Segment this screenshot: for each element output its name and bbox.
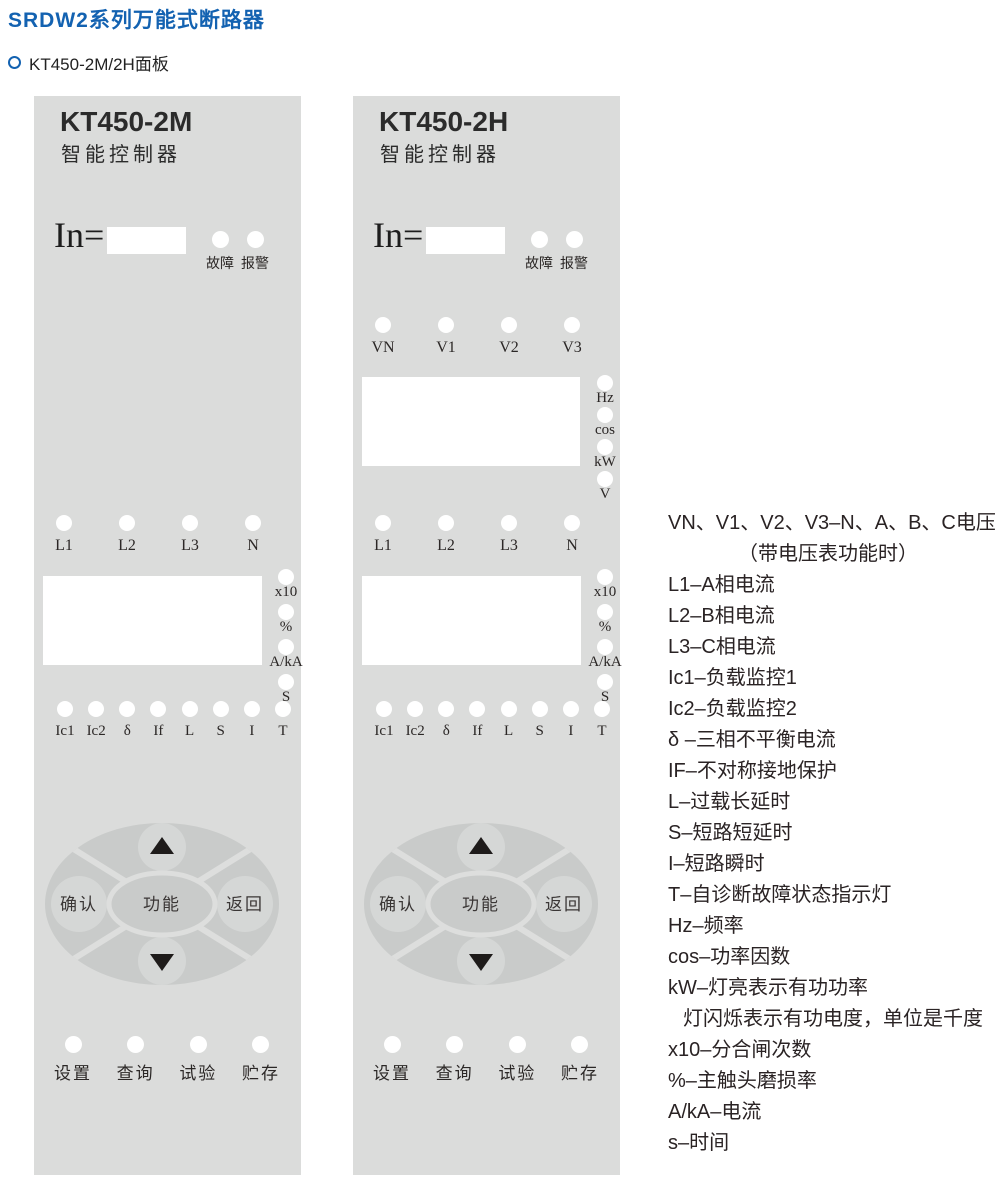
led-item-T: T [587, 701, 617, 740]
current-display [43, 576, 262, 665]
led-indicator [597, 375, 613, 391]
led-label: L [504, 723, 513, 740]
led-item-Ic2: Ic2 [81, 701, 111, 740]
keypad-return-button[interactable]: 返回 [536, 876, 592, 932]
led-label: L [185, 723, 194, 740]
led-label: δ [443, 723, 450, 740]
led-label: L1 [55, 537, 73, 555]
led-indicator [597, 407, 613, 423]
led-label: 贮存 [561, 1059, 599, 1084]
led-label: S [217, 723, 225, 740]
current-unit-led-column: x10%A/kAS [260, 569, 312, 709]
legend-line: T–自诊断故障状态指示灯 [668, 880, 998, 911]
led-item-%: % [278, 604, 294, 639]
led-item-故障: 故障 [522, 231, 556, 273]
legend-line: S–短路短延时 [668, 818, 998, 849]
led-indicator [190, 1036, 207, 1053]
led-item-贮存: 贮存 [239, 1036, 283, 1084]
protection-led-row: Ic1Ic2δIfLSIT [369, 701, 617, 740]
led-item-N: N [235, 515, 271, 555]
led-indicator [564, 515, 580, 531]
led-item-试验: 试验 [176, 1036, 220, 1084]
led-item-x10: x10 [594, 569, 617, 604]
led-label: V [600, 487, 611, 502]
legend-line: L–过载长延时 [668, 787, 998, 818]
led-item-If: If [143, 701, 173, 740]
voltage-led-row: VNV1V2V3 [365, 317, 590, 357]
led-item-δ: δ [112, 701, 142, 740]
led-label: Ic2 [87, 723, 106, 740]
led-item-A/kA: A/kA [588, 639, 621, 674]
led-item-L2: L2 [428, 515, 464, 555]
svg-text:返回: 返回 [545, 895, 583, 914]
legend-line: VN、V1、V2、V3–N、A、B、C电压 [668, 508, 998, 539]
led-indicator [597, 674, 613, 690]
legend-line: IF–不对称接地保护 [668, 756, 998, 787]
led-label: L2 [118, 537, 136, 555]
led-item-A/kA: A/kA [269, 639, 302, 674]
led-indicator [571, 1036, 588, 1053]
led-indicator [597, 604, 613, 620]
led-indicator [438, 701, 454, 717]
legend-line: %–主触头磨损率 [668, 1066, 998, 1097]
keypad-function-button[interactable]: 功能 [109, 873, 215, 935]
led-label: V3 [562, 339, 582, 357]
led-label: % [280, 620, 293, 635]
led-indicator [244, 701, 260, 717]
phase-led-row: L1L2L3N [365, 515, 590, 555]
keypad-function-button[interactable]: 功能 [428, 873, 534, 935]
led-label: Ic1 [374, 723, 393, 740]
led-item-V3: V3 [554, 317, 590, 357]
keypad: 确认 返回 功能 [43, 819, 281, 989]
led-label: δ [124, 723, 131, 740]
status-led-row: 故障报警 [203, 231, 272, 273]
led-label: N [566, 537, 578, 555]
rated-current-display [426, 227, 505, 254]
legend-line: I–短路瞬时 [668, 849, 998, 880]
led-label: cos [595, 423, 615, 438]
led-indicator [597, 639, 613, 655]
led-item-kW: kW [594, 439, 616, 471]
led-item-V1: V1 [428, 317, 464, 357]
led-indicator [127, 1036, 144, 1053]
led-label: x10 [594, 585, 617, 600]
legend-line: Hz–频率 [668, 911, 998, 942]
led-label: 设置 [373, 1059, 411, 1084]
led-indicator [597, 439, 613, 455]
led-item-VN: VN [365, 317, 401, 357]
legend-line: A/kA–电流 [668, 1097, 998, 1128]
led-indicator [594, 701, 610, 717]
led-label: 试验 [498, 1059, 536, 1084]
led-label: 故障 [206, 253, 234, 273]
led-label: 设置 [54, 1059, 92, 1084]
led-item-x10: x10 [275, 569, 298, 604]
led-label: L2 [437, 537, 455, 555]
panel-kt450-2h: KT450-2H 智能控制器 In= 故障报警 VNV1V2V3 HzcoskW… [353, 96, 620, 1175]
led-indicator [563, 701, 579, 717]
led-item-故障: 故障 [203, 231, 237, 273]
led-indicator [375, 515, 391, 531]
rated-current-label: In= [373, 214, 423, 256]
led-item-L1: L1 [46, 515, 82, 555]
led-indicator [182, 701, 198, 717]
led-item-V2: V2 [491, 317, 527, 357]
keypad-down-button[interactable] [138, 937, 186, 985]
legend-line: L1–A相电流 [668, 570, 998, 601]
led-item-I: I [556, 701, 586, 740]
panel-title: KT450-2H [379, 106, 508, 138]
led-item-查询: 查询 [433, 1036, 477, 1084]
voltage-display [362, 377, 580, 466]
led-label: 报警 [560, 253, 588, 273]
led-indicator [245, 515, 261, 531]
led-item-L3: L3 [172, 515, 208, 555]
led-item-cos: cos [595, 407, 615, 439]
led-item-L1: L1 [365, 515, 401, 555]
legend-line: x10–分合闸次数 [668, 1035, 998, 1066]
led-item-T: T [268, 701, 298, 740]
led-label: VN [371, 339, 394, 357]
led-indicator [252, 1036, 269, 1053]
led-indicator [501, 317, 517, 333]
led-item-V: V [597, 471, 613, 503]
keypad-up-button[interactable] [457, 823, 505, 871]
led-label: S [536, 723, 544, 740]
led-item-Ic2: Ic2 [400, 701, 430, 740]
led-indicator [438, 317, 454, 333]
keypad: 确认 返回 功能 [362, 819, 600, 989]
led-item-设置: 设置 [370, 1036, 414, 1084]
led-indicator [375, 317, 391, 333]
led-label: kW [594, 455, 616, 470]
led-label: 查询 [117, 1059, 155, 1084]
section-title: KT450-2M/2H面板 [29, 50, 169, 75]
led-item-查询: 查询 [114, 1036, 158, 1084]
mode-led-row: 设置查询试验贮存 [51, 1036, 283, 1084]
svg-text:功能: 功能 [462, 895, 500, 914]
led-indicator [446, 1036, 463, 1053]
led-label: V1 [436, 339, 456, 357]
panel-subtitle: 智能控制器 [61, 138, 181, 167]
led-label: If [153, 723, 163, 740]
legend-line: L3–C相电流 [668, 632, 998, 663]
led-indicator [501, 515, 517, 531]
legend-line: Ic1–负载监控1 [668, 663, 998, 694]
phase-led-row: L1L2L3N [46, 515, 271, 555]
led-label: L3 [181, 537, 199, 555]
legend-line: kW–灯亮表示有功功率 [668, 973, 998, 1004]
led-label: V2 [499, 339, 519, 357]
led-label: Ic2 [406, 723, 425, 740]
led-label: I [568, 723, 573, 740]
led-indicator [119, 701, 135, 717]
legend: VN、V1、V2、V3–N、A、B、C电压（带电压表功能时）L1–A相电流L2–… [668, 508, 998, 1159]
led-indicator [150, 701, 166, 717]
panel-kt450-2m: KT450-2M 智能控制器 In= 故障报警 L1L2L3N x10%A/kA… [34, 96, 301, 1175]
keypad-down-button[interactable] [457, 937, 505, 985]
led-indicator [597, 471, 613, 487]
led-item-If: If [462, 701, 492, 740]
section-bullet-icon [8, 56, 21, 69]
led-indicator [278, 674, 294, 690]
rated-current-display [107, 227, 186, 254]
legend-line: Ic2–负载监控2 [668, 694, 998, 725]
svg-text:返回: 返回 [226, 895, 264, 914]
led-indicator [597, 569, 613, 585]
led-item-N: N [554, 515, 590, 555]
led-indicator [182, 515, 198, 531]
led-indicator [531, 231, 548, 248]
led-indicator [566, 231, 583, 248]
led-item-%: % [597, 604, 613, 639]
svg-text:功能: 功能 [143, 895, 181, 914]
led-indicator [213, 701, 229, 717]
led-indicator [57, 701, 73, 717]
led-indicator [278, 569, 294, 585]
led-label: N [247, 537, 259, 555]
status-led-row: 故障报警 [522, 231, 591, 273]
protection-led-row: Ic1Ic2δIfLSIT [50, 701, 298, 740]
legend-line: （带电压表功能时） [668, 539, 998, 570]
led-label: 报警 [241, 253, 269, 273]
led-indicator [501, 701, 517, 717]
led-indicator [509, 1036, 526, 1053]
keypad-up-button[interactable] [138, 823, 186, 871]
led-item-报警: 报警 [557, 231, 591, 273]
led-label: 贮存 [242, 1059, 280, 1084]
led-indicator [469, 701, 485, 717]
led-indicator [564, 317, 580, 333]
led-label: % [599, 620, 612, 635]
led-item-设置: 设置 [51, 1036, 95, 1084]
led-indicator [407, 701, 423, 717]
led-label: A/kA [588, 655, 621, 670]
page-title: SRDW2系列万能式断路器 [8, 4, 265, 34]
led-item-Ic1: Ic1 [369, 701, 399, 740]
led-indicator [65, 1036, 82, 1053]
led-indicator [247, 231, 264, 248]
led-label: I [249, 723, 254, 740]
led-label: 故障 [525, 253, 553, 273]
current-display [362, 576, 581, 665]
panel-title: KT450-2M [60, 106, 192, 138]
led-item-贮存: 贮存 [558, 1036, 602, 1084]
led-indicator [56, 515, 72, 531]
led-indicator [212, 231, 229, 248]
legend-line: 灯闪烁表示有功电度，单位是千度 [668, 1004, 998, 1035]
led-item-L: L [494, 701, 524, 740]
led-item-报警: 报警 [238, 231, 272, 273]
led-indicator [119, 515, 135, 531]
legend-line: L2–B相电流 [668, 601, 998, 632]
led-indicator [88, 701, 104, 717]
current-unit-led-column: x10%A/kAS [579, 569, 631, 709]
voltage-unit-led-column: HzcoskWV [579, 375, 631, 503]
led-label: L3 [500, 537, 518, 555]
led-indicator [278, 639, 294, 655]
led-label: If [472, 723, 482, 740]
keypad-return-button[interactable]: 返回 [217, 876, 273, 932]
led-indicator [278, 604, 294, 620]
led-item-Ic1: Ic1 [50, 701, 80, 740]
led-item-Hz: Hz [596, 375, 614, 407]
legend-line: cos–功率因数 [668, 942, 998, 973]
led-item-I: I [237, 701, 267, 740]
led-label: L1 [374, 537, 392, 555]
led-item-S: S [206, 701, 236, 740]
legend-line: δ –三相不平衡电流 [668, 725, 998, 756]
led-label: Hz [596, 391, 614, 406]
led-item-S: S [525, 701, 555, 740]
led-indicator [438, 515, 454, 531]
led-label: 查询 [436, 1059, 474, 1084]
keypad-confirm-button[interactable]: 确认 [370, 876, 426, 932]
led-item-δ: δ [431, 701, 461, 740]
rated-current-label: In= [54, 214, 104, 256]
led-item-L: L [175, 701, 205, 740]
led-indicator [376, 701, 392, 717]
section-header: KT450-2M/2H面板 [8, 50, 169, 75]
led-indicator [532, 701, 548, 717]
mode-led-row: 设置查询试验贮存 [370, 1036, 602, 1084]
led-label: x10 [275, 585, 298, 600]
led-item-L3: L3 [491, 515, 527, 555]
legend-line: s–时间 [668, 1128, 998, 1159]
led-label: T [597, 723, 606, 740]
led-indicator [384, 1036, 401, 1053]
led-item-试验: 试验 [495, 1036, 539, 1084]
led-label: 试验 [179, 1059, 217, 1084]
led-label: T [278, 723, 287, 740]
page: SRDW2系列万能式断路器 KT450-2M/2H面板 KT450-2M 智能控… [0, 0, 1000, 1177]
led-item-L2: L2 [109, 515, 145, 555]
led-indicator [275, 701, 291, 717]
svg-text:确认: 确认 [60, 895, 98, 914]
led-label: Ic1 [55, 723, 74, 740]
svg-text:确认: 确认 [379, 895, 417, 914]
led-label: A/kA [269, 655, 302, 670]
panel-subtitle: 智能控制器 [380, 138, 500, 167]
keypad-confirm-button[interactable]: 确认 [51, 876, 107, 932]
